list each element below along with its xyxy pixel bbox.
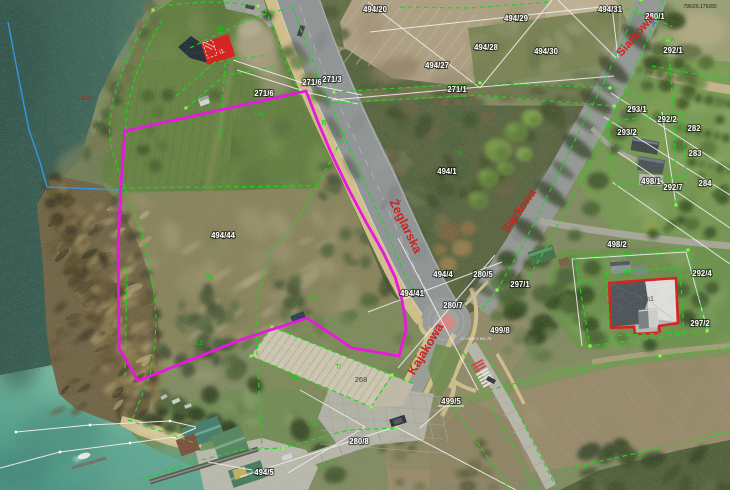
svg-text:271/1: 271/1	[447, 85, 467, 94]
svg-text:Ti: Ti	[457, 151, 461, 157]
svg-text:S-RB: S-RB	[579, 279, 592, 285]
svg-text:293/2: 293/2	[617, 128, 637, 137]
svg-text:499/8: 499/8	[490, 326, 510, 335]
svg-text:271/6: 271/6	[254, 89, 274, 98]
svg-text:271/3: 271/3	[322, 75, 342, 84]
svg-text:292/2: 292/2	[657, 115, 677, 124]
svg-text:Lz: Lz	[195, 340, 203, 347]
svg-text:796/26.179282: 796/26.179282	[683, 4, 717, 10]
svg-text:B: B	[626, 270, 631, 277]
svg-text:Rb: Rb	[366, 353, 375, 360]
svg-text:494/29: 494/29	[504, 14, 529, 23]
svg-text:494/4: 494/4	[433, 270, 453, 279]
svg-text:292/4: 292/4	[692, 269, 712, 278]
svg-text:494/27: 494/27	[425, 61, 449, 70]
svg-text:07-0670.1 NO.75: 07-0670.1 NO.75	[461, 336, 492, 341]
svg-text:499/5: 499/5	[441, 397, 461, 406]
svg-text:494/44: 494/44	[211, 231, 236, 240]
svg-text:293/1: 293/1	[627, 105, 647, 114]
svg-text:280/8: 280/8	[349, 437, 369, 446]
svg-text:292/1: 292/1	[663, 46, 683, 55]
svg-text:268: 268	[355, 375, 368, 384]
svg-text:494/20: 494/20	[363, 5, 388, 14]
svg-text:498/2: 498/2	[607, 240, 627, 249]
svg-text:283: 283	[688, 149, 702, 158]
svg-text:LN: LN	[255, 111, 264, 118]
svg-text:280/5: 280/5	[473, 270, 493, 279]
svg-text:Rb: Rb	[289, 375, 298, 382]
svg-text:297/2: 297/2	[690, 319, 710, 328]
svg-text:494/5: 494/5	[254, 468, 274, 477]
svg-text:271/6: 271/6	[302, 78, 322, 87]
svg-text:Ti: Ti	[335, 364, 341, 371]
svg-text:494/28: 494/28	[474, 43, 499, 52]
svg-text:292/7: 292/7	[663, 183, 683, 192]
svg-text:494/30: 494/30	[534, 47, 559, 56]
svg-text:494/41: 494/41	[400, 289, 425, 298]
svg-text:LN: LN	[307, 421, 316, 428]
svg-text:Bi: Bi	[217, 26, 224, 33]
svg-text:B: B	[322, 120, 327, 127]
svg-text:LN: LN	[310, 295, 319, 302]
svg-text:282: 282	[687, 124, 701, 133]
svg-text:297/1: 297/1	[510, 280, 530, 289]
svg-text:284: 284	[698, 179, 712, 188]
svg-text:494/31: 494/31	[598, 5, 623, 14]
svg-text:S-RA: S-RA	[661, 37, 674, 43]
svg-text:bec.: bec.	[82, 95, 94, 102]
svg-text:494/1: 494/1	[437, 167, 457, 176]
svg-text:Ps: Ps	[205, 274, 214, 281]
svg-text:498/1: 498/1	[641, 177, 661, 186]
svg-text:280/7: 280/7	[443, 301, 463, 310]
